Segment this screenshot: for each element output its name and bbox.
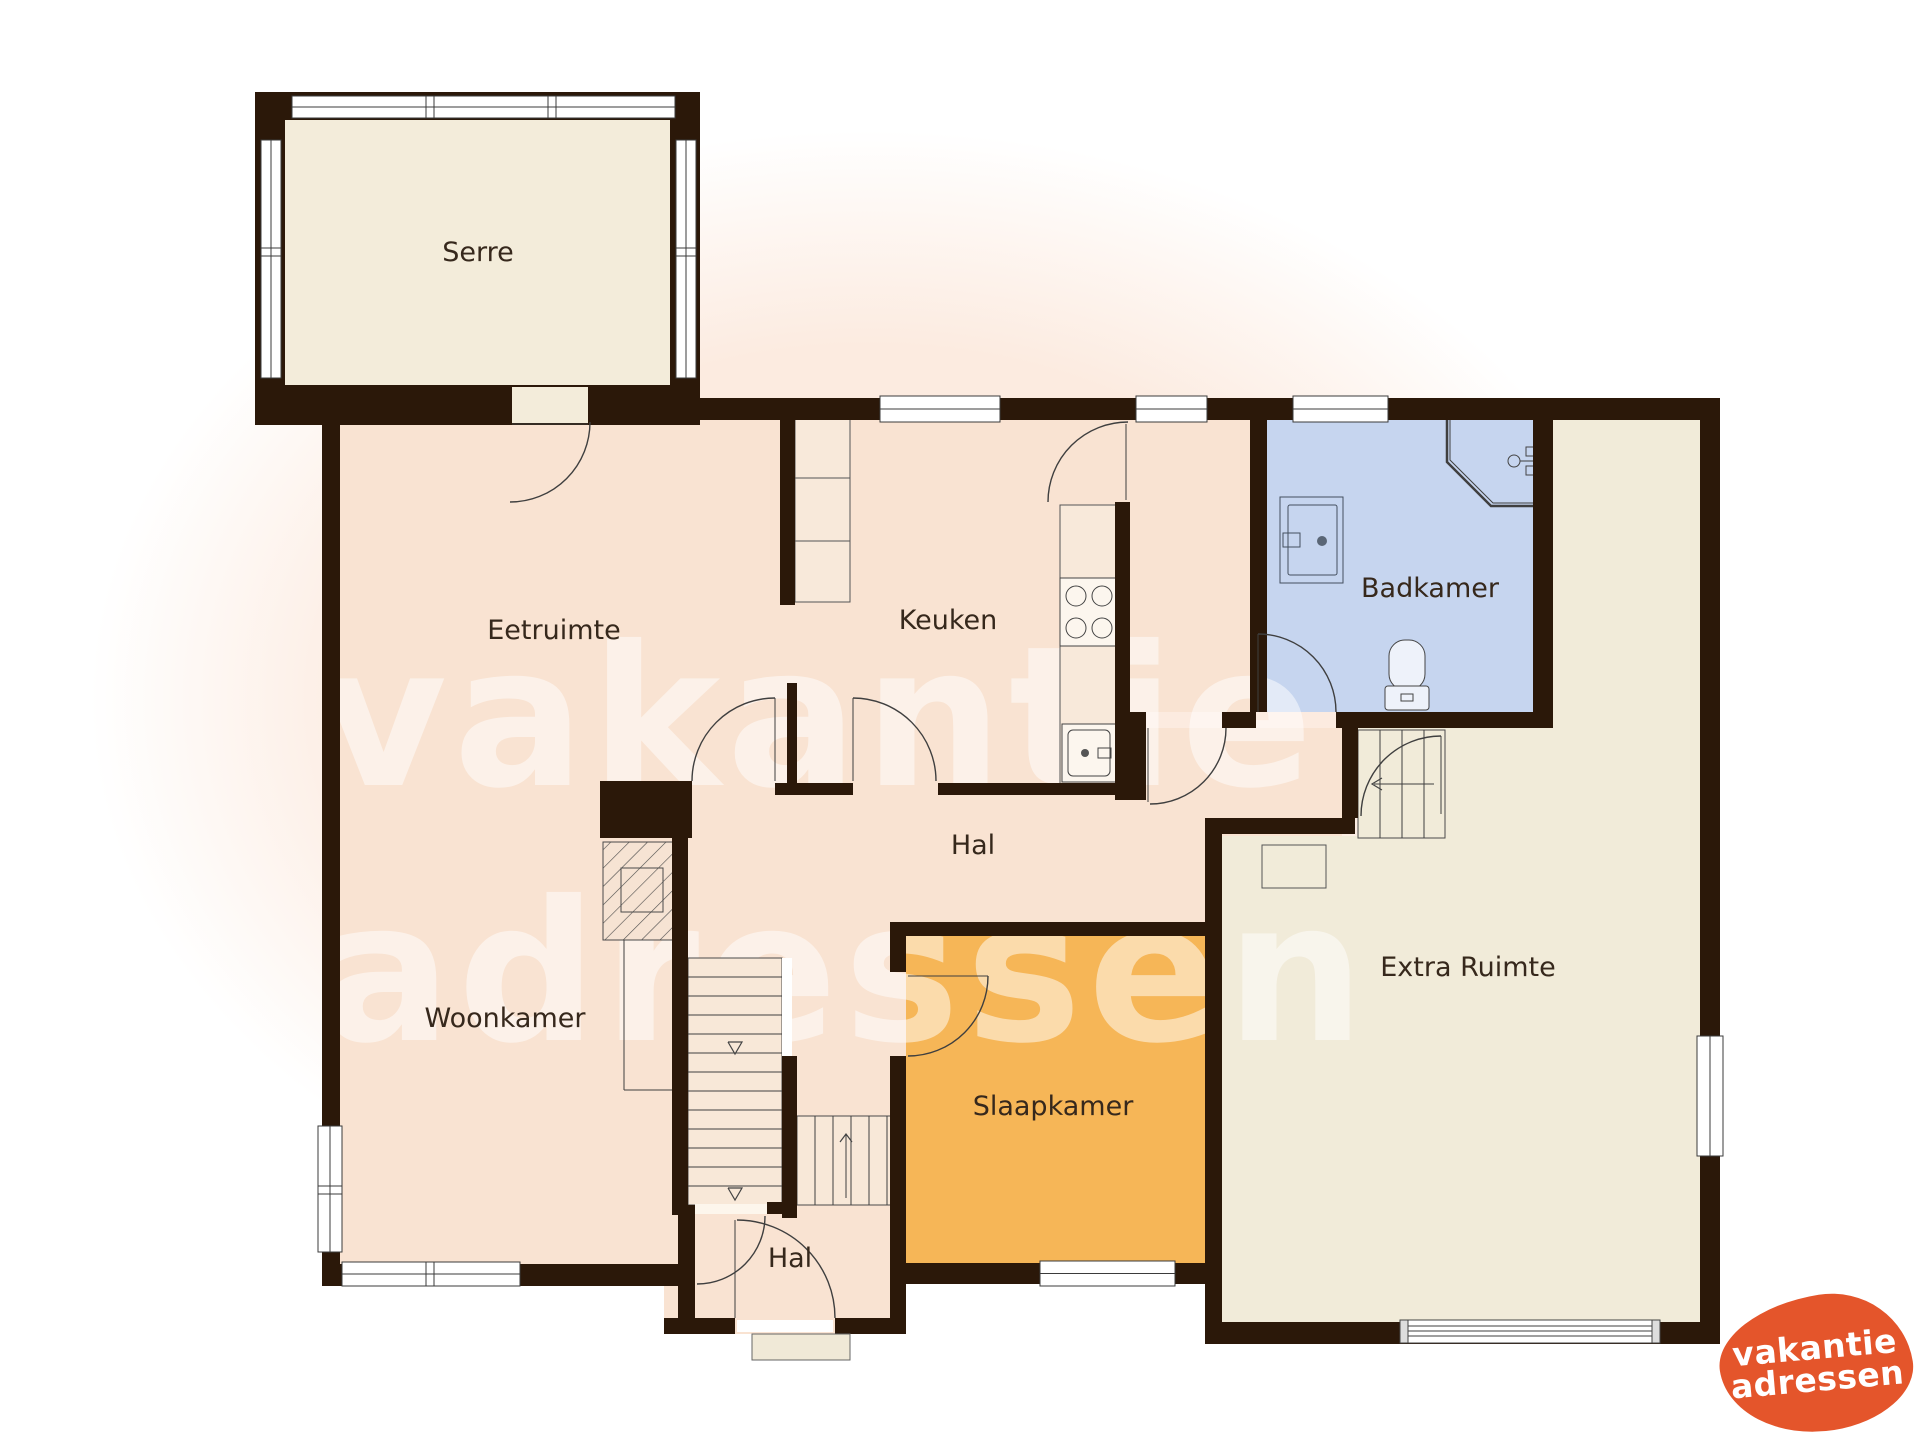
kitchen-cabinet	[795, 415, 850, 478]
wall-bathroom-bottom	[1222, 712, 1256, 728]
pantry-door-threshold	[1115, 420, 1130, 502]
wall-pillar	[600, 781, 692, 838]
wall-bedroom-right	[1205, 820, 1222, 1344]
washbasin-faucet	[1317, 536, 1327, 546]
porch-step	[752, 1334, 850, 1360]
sliding-door-cap	[1400, 1320, 1408, 1343]
watermark-line1: vakantie	[320, 604, 1319, 831]
extra-room-cupboard	[1262, 845, 1326, 888]
floorplan-page: vakantieadressenSerreEetruimteKeukenBadk…	[0, 0, 1920, 1440]
stair-railing	[782, 958, 792, 1056]
wall-right	[1700, 398, 1720, 1344]
wall-bathroom-bottom	[1336, 712, 1553, 728]
wall-bathroom-right	[1533, 398, 1553, 728]
room-label-keuken: Keuken	[899, 605, 997, 636]
wall-stub	[787, 683, 797, 783]
wall-hall-bottom	[664, 1318, 735, 1334]
room-label-hal-lower: Hal	[768, 1243, 812, 1274]
room-label-badkamer: Badkamer	[1361, 573, 1500, 604]
staircase	[688, 958, 782, 1205]
inner-door-threshold	[695, 1204, 767, 1214]
wall-pantry-left	[1115, 500, 1130, 712]
wall-hall-left	[678, 1205, 695, 1334]
serre-door-threshold	[512, 387, 588, 423]
wall-bedroom-top	[890, 922, 1220, 936]
floorplan-svg: vakantieadressenSerreEetruimteKeukenBadk…	[0, 0, 1920, 1440]
wall-dining-kitchen	[780, 420, 795, 605]
toilet-bowl	[1389, 640, 1425, 690]
kitchen-cabinet	[795, 541, 850, 602]
fireplace	[603, 842, 679, 940]
sliding-door-cap	[1652, 1320, 1660, 1343]
room-label-woonkamer: Woonkamer	[425, 1003, 587, 1034]
wall-hall-east	[1205, 818, 1355, 834]
room-label-hal: Hal	[951, 830, 995, 861]
room-label-eetruimte: Eetruimte	[487, 615, 620, 646]
front-door-threshold	[737, 1320, 833, 1332]
room-label-slaapkamer: Slaapkamer	[973, 1091, 1134, 1122]
wall-kitchen-hall	[775, 783, 853, 795]
wall-innerdoor-stub	[767, 1202, 788, 1214]
wall-steps-divider	[1342, 728, 1358, 818]
staircase-lower	[797, 1116, 892, 1205]
wall-stair-right	[782, 1056, 797, 1218]
room-label-serre: Serre	[442, 237, 514, 268]
kitchen-cabinet	[795, 478, 850, 541]
vakantieadressen-logo: vakantie adressen	[1711, 1282, 1920, 1440]
extra-room-floor-strip	[1553, 420, 1700, 730]
wall-fireplace	[672, 838, 688, 1215]
logo-text: vakantie adressen	[1714, 1288, 1917, 1440]
wall-kitchen-hall	[938, 783, 1146, 795]
room-label-extra-ruimte: Extra Ruimte	[1380, 952, 1556, 983]
kitchen-faucet	[1081, 749, 1089, 757]
toilet-cistern	[1385, 686, 1429, 710]
wall-bedroom-left	[890, 1056, 906, 1334]
stove	[1060, 578, 1118, 646]
